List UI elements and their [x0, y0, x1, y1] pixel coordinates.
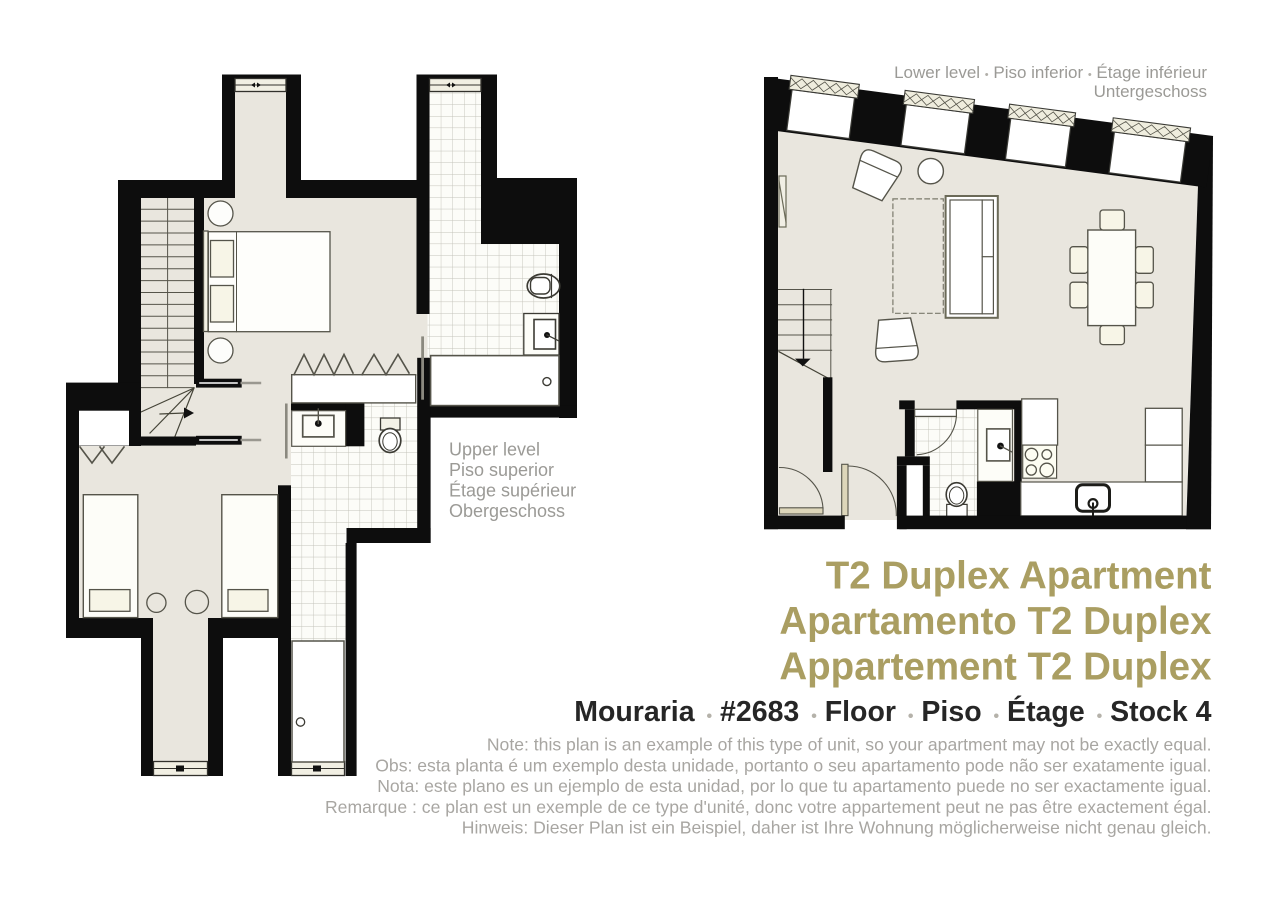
- svg-text:Piso superior: Piso superior: [449, 460, 554, 480]
- svg-text:Remarque : ce plan est un exem: Remarque : ce plan est un exemple de ce …: [325, 797, 1212, 817]
- svg-text:Lower level • Piso inferior •: Lower level • Piso inferior • Étage infé…: [894, 63, 1207, 82]
- svg-text:Mouraria • #2683 • Floor • Pis: Mouraria • #2683 • Floor • Piso • Étage …: [574, 696, 1211, 728]
- svg-text:Nota: este plano es un ejemplo: Nota: este plano es un ejemplo de esta u…: [377, 776, 1211, 796]
- svg-text:Étage supérieur: Étage supérieur: [449, 481, 576, 501]
- svg-text:Obs: esta planta é um exemplo: Obs: esta planta é um exemplo desta unid…: [375, 755, 1211, 775]
- svg-text:Apartamento T2 Duplex: Apartamento T2 Duplex: [779, 600, 1212, 643]
- svg-text:Note: this plan is an example: Note: this plan is an example of this ty…: [487, 735, 1212, 755]
- svg-text:Hinweis: Dieser Plan ist ein B: Hinweis: Dieser Plan ist ein Beispiel, d…: [462, 818, 1212, 838]
- svg-text:Appartement T2 Duplex: Appartement T2 Duplex: [779, 646, 1212, 689]
- svg-text:T2 Duplex Apartment: T2 Duplex Apartment: [826, 555, 1212, 598]
- svg-text:Upper level: Upper level: [449, 440, 540, 460]
- svg-text:Untergeschoss: Untergeschoss: [1094, 82, 1207, 101]
- svg-text:Obergeschoss: Obergeschoss: [449, 501, 565, 521]
